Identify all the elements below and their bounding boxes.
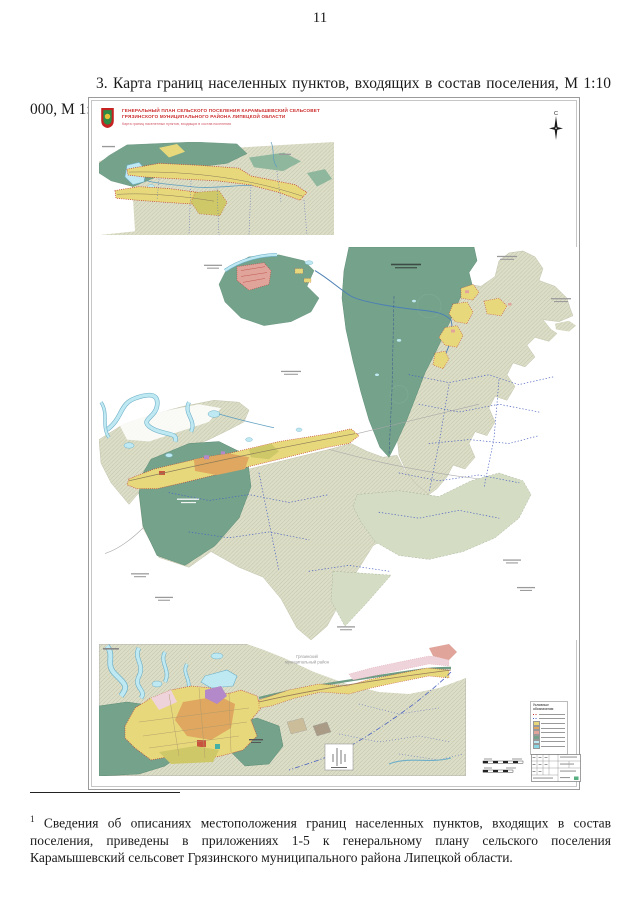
footnote-separator [30, 792, 180, 793]
legend-box: Условные обозначения [530, 701, 568, 755]
map-sheet-inner-frame: ГЕНЕРАЛЬНЫЙ ПЛАН СЕЛЬСКОГО ПОСЕЛЕНИЯ КАР… [91, 100, 577, 787]
footnote-marker: 1 [30, 814, 35, 824]
inset-map-north-village [99, 142, 334, 239]
map-title-block: ГЕНЕРАЛЬНЫЙ ПЛАН СЕЛЬСКОГО ПОСЕЛЕНИЯ КАР… [100, 107, 430, 137]
map-title-text: ГЕНЕРАЛЬНЫЙ ПЛАН СЕЛЬСКОГО ПОСЕЛЕНИЯ КАР… [122, 108, 422, 120]
legend-row [533, 722, 565, 725]
document-page: { "page": { "number": "11" }, "heading":… [0, 0, 640, 905]
legend-swatch-boundary-blue [533, 718, 538, 719]
district-label-line1: Грязинский [296, 654, 318, 659]
stamp-mark [574, 777, 579, 781]
legend-row [533, 740, 565, 743]
scale-bars [482, 756, 528, 779]
legend-swatch-boundary-red [533, 714, 538, 715]
legend-title: Условные обозначения [533, 704, 565, 711]
map-subtitle-text: Карта границ населенных пунктов, входящи… [122, 122, 422, 126]
legend-row [533, 731, 565, 734]
legend-row [533, 736, 565, 739]
main-territory-map [99, 247, 579, 640]
stamp-table [531, 754, 581, 782]
compass-rose-icon: С [548, 109, 564, 141]
scale-bar-2 [483, 768, 516, 773]
inset-map-main-village: Грязинский муниципальный район [99, 644, 466, 776]
scale-bar-1 [483, 759, 523, 764]
page-number: 11 [0, 10, 640, 27]
legend-row [533, 717, 565, 720]
legend-swatch-water2 [533, 744, 540, 749]
legend-row [533, 727, 565, 730]
symbol-detail-box [325, 744, 353, 770]
district-label-line2: муниципальный район [285, 660, 330, 665]
footnote-text: Сведения об описаниях местоположения гра… [30, 815, 611, 865]
legend-row [533, 745, 565, 748]
map-sheet: ГЕНЕРАЛЬНЫЙ ПЛАН СЕЛЬСКОГО ПОСЕЛЕНИЯ КАР… [88, 97, 580, 790]
legend-row [533, 713, 565, 716]
footnote: 1 Сведения об описаниях местоположения г… [30, 811, 611, 867]
coat-of-arms-icon [100, 107, 115, 129]
